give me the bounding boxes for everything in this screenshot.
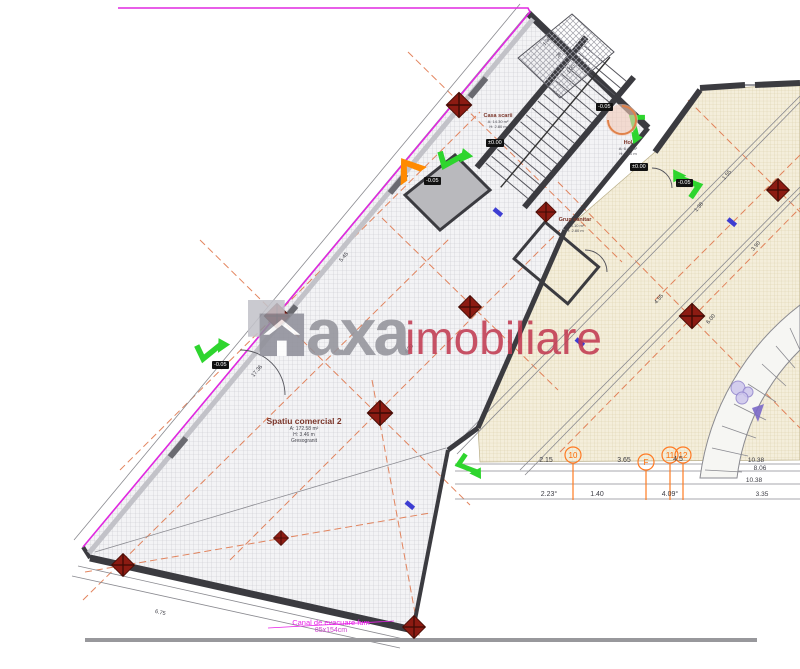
dim-label: 2.23° [541,490,558,498]
dim-label: 8.06 [754,465,767,472]
dim-label: 3.35 [756,491,769,498]
dim-label: 4.09° [662,490,679,498]
dim-label: 2.15 [539,457,553,464]
flue-text: Canal de evacuare fum [266,618,396,627]
section-line [85,638,757,642]
elevation-label: ±0.00 [486,139,504,147]
flue-note: Canal de evacuare fum 85x154cm [266,618,396,634]
dim-label: 3.65 [617,457,631,464]
flue-size: 85x154cm [266,627,396,634]
elevation-label: -0.05 [596,103,613,111]
dim-label: 10.38 [746,477,763,484]
axis-bubble-label: F [644,458,649,467]
elevation-label: ±0.00 [630,163,648,171]
elevation-label: -0.05 [424,177,441,185]
elevation-label: -0.05 [676,179,693,187]
dim-label: 1.40 [590,491,604,498]
floor-plan-drawing: 10 F 11 12 2.15 3.65 4.5 10.38 8.06 10.3… [0,0,800,669]
dim-label: 4.5 [673,456,683,463]
dim-label: 10.38 [748,457,765,464]
elevation-label: -0.05 [212,361,229,369]
axis-bubble-label: 10 [569,451,578,460]
floor-plan-page: 10 F 11 12 2.15 3.65 4.5 10.38 8.06 10.3… [0,0,800,669]
dim-label: 6.75 [154,609,166,617]
